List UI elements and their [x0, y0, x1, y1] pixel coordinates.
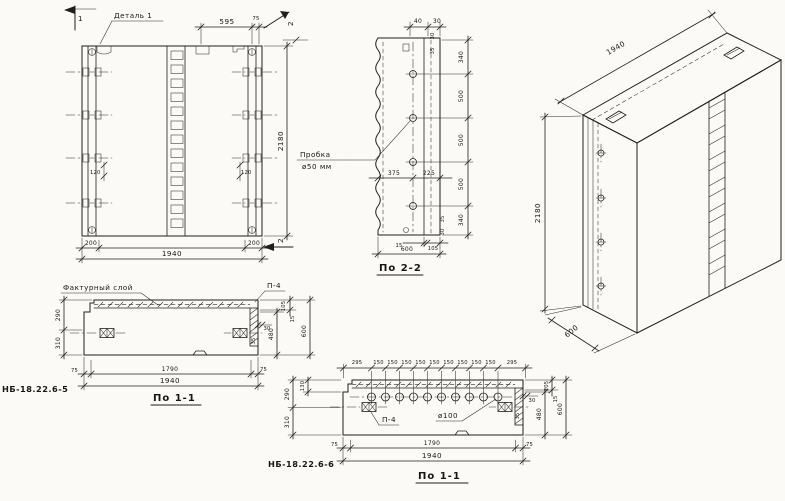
dim-1940-front-label: 1940 [162, 249, 182, 258]
s11b-body [330, 380, 530, 435]
s11b-dim-75-right: 75 [526, 442, 533, 448]
s22-plug-line1: Пробка [300, 150, 331, 159]
s22-dim-375: 375 [388, 170, 400, 177]
s11b-dim-290: 290 [284, 388, 291, 400]
s22-dim-500-3: 500 [458, 178, 465, 190]
s11b-dim-150-7: 150 [457, 360, 468, 366]
dim-120-left: 120 [90, 162, 107, 181]
s11b-dim-150-3: 150 [401, 360, 412, 366]
s11b-dim-150-8: 150 [471, 360, 482, 366]
iso-plug-holes [596, 144, 606, 295]
s11b-hole-label: ø100 [438, 411, 458, 420]
dim-2180-front: 2180 [264, 42, 293, 240]
s11b-dim-right: 105 15 30 35 480 600 [515, 376, 572, 439]
s11b-dim-130: 130 [300, 381, 306, 392]
s11b-dim-150-6: 150 [443, 360, 454, 366]
iso-dim-2180-label: 2180 [533, 203, 542, 223]
s22-sub-30-top: 30 [430, 32, 436, 39]
s11b-dim-top: 295 150 150 150 150 150 150 150 150 150 … [337, 360, 532, 378]
section-marker-2-top-label: 2 [286, 21, 295, 26]
s11a-dim-1940: 1940 [160, 376, 180, 385]
s11a-dim-480: 480 [268, 328, 275, 340]
s11b-dim-35: 35 [515, 412, 521, 419]
iso-view: 1940 2180 600 [533, 10, 781, 353]
s11a-dim-310: 310 [55, 337, 62, 349]
section-1-1-b: 295 150 150 150 150 150 150 150 150 150 … [268, 360, 572, 483]
dim-200-right-label: 200 [248, 240, 260, 247]
front-top-edge-details [97, 46, 244, 54]
section-marker-1-label: 1 [78, 14, 83, 23]
s11a-dim-600: 600 [301, 325, 308, 337]
s22-dim-right-chain: 340 500 500 500 340 30 35 35 30 [420, 32, 473, 239]
s22-dim-top: 40 30 [404, 18, 446, 36]
s11a-dim-bottom: 75 1790 75 1940 [71, 357, 267, 390]
dim-top-595-75: 595 75 [195, 16, 267, 44]
dim-120-right: 120 [237, 162, 252, 181]
iso-dim-2180: 2180 [533, 113, 581, 313]
s11b-title: По 1-1 [416, 471, 468, 483]
iso-panel-body [583, 33, 781, 333]
s22-dim-105: 105 [428, 246, 439, 252]
s11b-p4-callout: П-4 [371, 412, 399, 425]
front-lifting-brackets [66, 68, 278, 207]
s22-dim-600: 600 [401, 246, 413, 253]
iso-keyed-edge [709, 92, 725, 296]
s11b-dim-15: 15 [553, 395, 559, 402]
s11a-dim-105: 105 [281, 301, 287, 312]
s11b-dim-295-right: 295 [507, 360, 518, 366]
s11a-dim-right: 105 15 30 35 480 600 [251, 296, 315, 359]
s11b-p4-label: П-4 [382, 415, 396, 424]
iso-dim-1940-label: 1940 [605, 39, 627, 57]
s11a-p4-label: П-4 [267, 281, 281, 290]
dim-2180-front-label: 2180 [276, 131, 285, 151]
s22-dim-bottom: 15 105 600 [372, 237, 448, 258]
s11b-dim-480: 480 [536, 408, 543, 420]
dim-120-right-label: 120 [241, 170, 252, 176]
s22-plug-holes [406, 42, 420, 232]
s11b-dim-295-left: 295 [352, 360, 363, 366]
dim-595-label: 595 [219, 17, 234, 26]
section-marker-1: 1 [64, 6, 96, 30]
drawing-canvas: 120 120 595 75 1 2 2 Деталь 1 [0, 0, 785, 501]
s11b-mark: НБ-18.22.6-6 [268, 459, 334, 469]
s22-dim-30-top: 30 [433, 18, 441, 25]
s11a-dim-15: 15 [290, 315, 296, 322]
s11b-mark-label: НБ-18.22.6-6 [268, 459, 334, 469]
s11a-facture-label: Фактурный слой [63, 283, 133, 292]
s11a-dim-35: 35 [251, 337, 257, 344]
s11b-dim-150-4: 150 [415, 360, 426, 366]
iso-dim-600: 600 [545, 307, 635, 353]
s22-sub-35-bottom: 35 [440, 215, 446, 222]
s11a-dim-75-left: 75 [71, 368, 78, 374]
s22-dim-340-bottom: 340 [458, 214, 465, 226]
s22-title: По 2-2 [377, 263, 423, 275]
s11a-mark-label: НБ-18.22.6-5 [2, 384, 68, 394]
s11b-hole-callout: ø100 [436, 399, 496, 421]
dim-75-label: 75 [252, 16, 259, 22]
s11b-title-label: По 1-1 [418, 471, 461, 482]
s22-dim-500-1: 500 [458, 90, 465, 102]
s11b-dim-30: 30 [528, 398, 535, 404]
front-keyed-column [167, 46, 185, 236]
s22-dim-225: 225 [423, 170, 435, 177]
s11a-dim-1790: 1790 [162, 366, 178, 373]
s22-sub-35-top: 35 [430, 47, 436, 54]
s22-plug-line2: ø50 мм [302, 162, 332, 171]
s11a-facture-callout: Фактурный слой [61, 283, 158, 305]
iso-top-slots [606, 47, 744, 123]
s11a-dim-left: 290 310 [55, 296, 92, 359]
s22-body [376, 38, 440, 235]
s11a-dim-290: 290 [55, 309, 62, 321]
s11b-dim-150-1: 150 [373, 360, 384, 366]
section-marker-2-bottom-label: 2 [276, 238, 285, 243]
dim-bottom-front: 200 200 1940 [76, 238, 268, 263]
s22-plug-callout: Пробка ø50 мм [297, 120, 411, 171]
s22-sub-30-bottom: 30 [440, 228, 446, 235]
front-panel-outline [82, 46, 262, 236]
s11a-title-label: По 1-1 [153, 393, 196, 404]
s11b-dim-1940: 1940 [422, 451, 442, 460]
s11b-dim-150-2: 150 [387, 360, 398, 366]
detail-callout: Деталь 1 [100, 11, 163, 44]
dim-200-left-label: 200 [85, 240, 97, 247]
section-marker-2-top: 2 [264, 11, 308, 43]
s22-dim-340-top: 340 [458, 51, 465, 63]
s22-title-label: По 2-2 [379, 263, 422, 274]
section-2-2: 40 30 340 500 500 500 340 30 35 35 30 37… [297, 18, 473, 275]
s11a-title: По 1-1 [151, 393, 201, 405]
iso-dim-1940: 1940 [555, 10, 727, 115]
s11b-dim-600: 600 [557, 403, 564, 415]
s11b-dim-1790: 1790 [424, 440, 440, 447]
engineering-drawing-sheet: 120 120 595 75 1 2 2 Деталь 1 [0, 0, 785, 501]
s11b-dim-150-5: 150 [429, 360, 440, 366]
front-view: 120 120 595 75 1 2 2 Деталь 1 [64, 6, 308, 263]
s11b-holes-row [368, 371, 503, 404]
s11a-p4-callout: П-4 [255, 281, 285, 302]
s11a-dim-75-right: 75 [260, 367, 267, 373]
dim-120-left-label: 120 [90, 170, 101, 176]
s11b-dim-150-9: 150 [485, 360, 496, 366]
s11b-dim-left: 290 310 130 [284, 376, 341, 439]
s22-dim-40: 40 [414, 18, 422, 25]
s22-dim-500-2: 500 [458, 134, 465, 146]
section-marker-2-bottom: 2 [263, 238, 293, 251]
s11b-dim-bottom: 75 1790 75 1940 [331, 437, 533, 465]
s11b-dim-75-left: 75 [331, 442, 338, 448]
section-1-1-a: Фактурный слой П-4 290 310 105 15 30 35 … [2, 281, 315, 405]
detail-label: Деталь 1 [114, 11, 152, 20]
front-anchor-symbols [89, 49, 256, 234]
s11a-mark: НБ-18.22.6-5 [2, 384, 68, 394]
s11b-dim-310: 310 [284, 416, 291, 428]
s11a-body [70, 300, 262, 355]
